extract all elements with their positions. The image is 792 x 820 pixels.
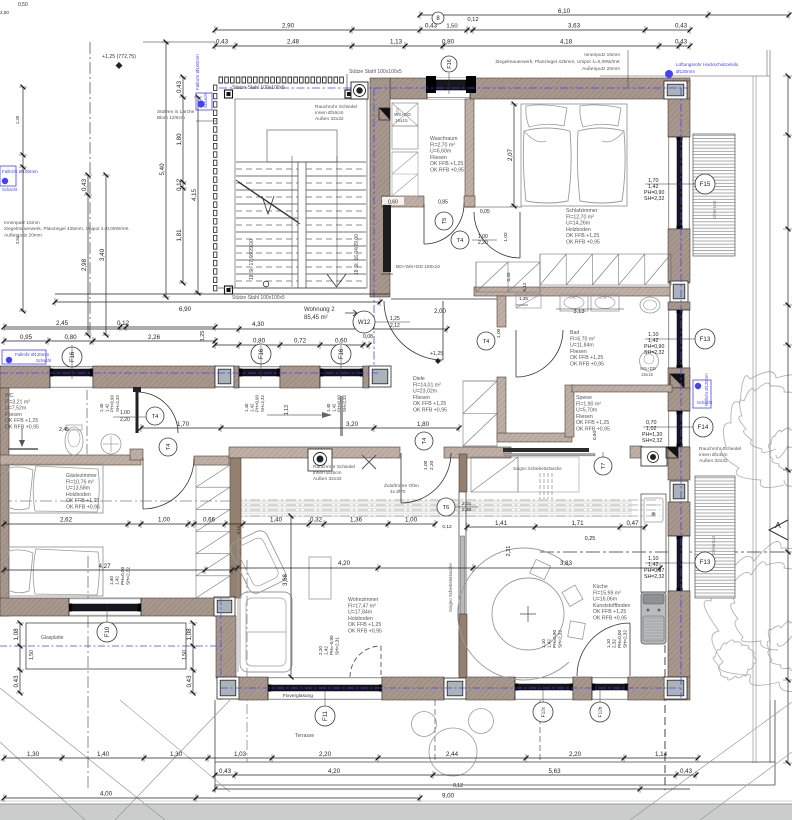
svg-text:0,43: 0,43 bbox=[680, 768, 693, 775]
svg-text:WS+DD: WS+DD bbox=[640, 366, 656, 371]
svg-text:BD+WS+DD 180x10: BD+WS+DD 180x10 bbox=[396, 264, 440, 270]
svg-text:3,68: 3,68 bbox=[283, 574, 289, 586]
svg-text:1,50: 1,50 bbox=[182, 650, 188, 660]
svg-text:18 St. 17,66/29,00: 18 St. 17,66/29,00 bbox=[249, 239, 255, 280]
svg-text:1,81: 1,81 bbox=[176, 229, 183, 242]
svg-text:U=7,52m: U=7,52m bbox=[5, 406, 26, 412]
svg-text:1,80: 1,80 bbox=[176, 133, 183, 146]
svg-text:1,50: 1,50 bbox=[446, 24, 457, 30]
svg-text:Schlafzimmer: Schlafzimmer bbox=[566, 208, 598, 214]
svg-text:1,41: 1,41 bbox=[495, 520, 508, 527]
svg-text:Innenputz 15mm: Innenputz 15mm bbox=[584, 52, 620, 58]
svg-text:U=17,84m: U=17,84m bbox=[348, 610, 372, 616]
svg-text:OK FFB +1,25: OK FFB +1,25 bbox=[5, 418, 38, 424]
svg-text:SH=2,31: SH=2,31 bbox=[335, 637, 340, 655]
svg-text:Holzboden: Holzboden bbox=[348, 616, 373, 622]
svg-text:Fl=10,76 m²: Fl=10,76 m² bbox=[66, 479, 94, 485]
svg-text:1,40: 1,40 bbox=[270, 517, 283, 524]
svg-text:F16: F16 bbox=[447, 59, 453, 68]
svg-text:9,00: 9,00 bbox=[442, 793, 455, 800]
svg-text:PH=0,00: PH=0,00 bbox=[617, 630, 622, 648]
svg-text:15x15: 15x15 bbox=[395, 118, 408, 123]
svg-text:Ziegelmauerwerk, Planziegel 42: Ziegelmauerwerk, Planziegel 425mm, Unipo… bbox=[495, 59, 620, 65]
svg-text:Außen 32x32: Außen 32x32 bbox=[315, 116, 344, 122]
svg-text:W12: W12 bbox=[358, 320, 371, 326]
svg-text:Fl=6,70 m²: Fl=6,70 m² bbox=[570, 336, 595, 342]
svg-text:2,21: 2,21 bbox=[506, 546, 512, 557]
svg-text:4,00: 4,00 bbox=[100, 791, 113, 798]
svg-text:OK RFB +0,95: OK RFB +0,95 bbox=[430, 168, 464, 174]
svg-text:0,72: 0,72 bbox=[294, 338, 307, 345]
svg-text:2,20: 2,20 bbox=[429, 460, 435, 470]
svg-text:OK RFB +0,95: OK RFB +0,95 bbox=[570, 362, 604, 368]
svg-text:OK FFB +1,25: OK FFB +1,25 bbox=[576, 420, 609, 426]
svg-text:2,12: 2,12 bbox=[390, 323, 400, 329]
svg-text:Schacht: Schacht bbox=[697, 400, 713, 405]
svg-text:OK RFB +0,95: OK RFB +0,95 bbox=[566, 240, 600, 246]
svg-text:0,43: 0,43 bbox=[186, 675, 193, 688]
svg-text:4,30: 4,30 bbox=[252, 321, 265, 328]
svg-text:Stützen in Lärche: Stützen in Lärche bbox=[157, 109, 195, 115]
svg-text:SH=2,32: SH=2,32 bbox=[644, 196, 664, 202]
svg-text:1,42: 1,42 bbox=[324, 646, 329, 655]
svg-text:1,70: 1,70 bbox=[177, 421, 190, 428]
svg-text:2,26: 2,26 bbox=[148, 334, 161, 341]
svg-text:6,10: 6,10 bbox=[558, 8, 571, 15]
svg-text:3,83: 3,83 bbox=[560, 560, 573, 567]
svg-text:Blom 12/6cm: Blom 12/6cm bbox=[157, 115, 185, 121]
svg-text:1,80: 1,80 bbox=[417, 421, 430, 428]
svg-text:2,62: 2,62 bbox=[60, 517, 73, 524]
svg-text:T5: T5 bbox=[442, 218, 448, 225]
svg-text:0,60: 0,60 bbox=[388, 200, 398, 206]
svg-text:Stütze Stahl 100x100x5: Stütze Stahl 100x100x5 bbox=[349, 69, 402, 75]
svg-text:1,40: 1,40 bbox=[326, 403, 331, 412]
svg-text:SH=2,32: SH=2,32 bbox=[260, 395, 265, 412]
svg-text:T4: T4 bbox=[422, 437, 428, 445]
svg-text:F16: F16 bbox=[339, 348, 345, 359]
svg-text:SH=2,32: SH=2,32 bbox=[126, 567, 131, 585]
svg-text:Wohnzimmer: Wohnzimmer bbox=[348, 597, 379, 603]
svg-text:1,08: 1,08 bbox=[186, 628, 193, 641]
svg-text:5,40: 5,40 bbox=[159, 163, 166, 176]
svg-text:0,25: 0,25 bbox=[585, 536, 596, 542]
svg-text:0,12: 0,12 bbox=[236, 525, 241, 534]
svg-text:2,20: 2,20 bbox=[569, 751, 582, 758]
svg-text:1,40: 1,40 bbox=[244, 403, 249, 412]
svg-text:1,08: 1,08 bbox=[13, 628, 20, 641]
svg-text:innen Ø16cm: innen Ø16cm bbox=[313, 470, 342, 476]
svg-text:Speise: Speise bbox=[576, 395, 592, 401]
svg-text:Fallrohr Ø120mm: Fallrohr Ø120mm bbox=[15, 352, 50, 357]
svg-text:Fl=2,70 m²: Fl=2,70 m² bbox=[430, 142, 455, 148]
svg-text:Stütze Stahl 100x100x5: Stütze Stahl 100x100x5 bbox=[232, 85, 285, 91]
svg-text:F13: F13 bbox=[700, 336, 711, 343]
svg-text:SH=2,32: SH=2,32 bbox=[644, 350, 664, 356]
svg-text:3,40: 3,40 bbox=[99, 248, 106, 261]
svg-text:T4: T4 bbox=[457, 238, 465, 244]
svg-text:0,47: 0,47 bbox=[626, 520, 639, 527]
svg-text:Rauchrohr Schiedel: Rauchrohr Schiedel bbox=[699, 446, 741, 452]
svg-text:T4: T4 bbox=[166, 443, 172, 451]
svg-text:0,12: 0,12 bbox=[467, 17, 478, 23]
svg-text:1,40: 1,40 bbox=[109, 576, 114, 585]
svg-text:Fl=17,47 m²: Fl=17,47 m² bbox=[348, 603, 376, 609]
svg-text:Außen 32x32: Außen 32x32 bbox=[313, 476, 342, 482]
svg-text:1,71: 1,71 bbox=[571, 520, 584, 527]
svg-text:1,42: 1,42 bbox=[115, 576, 120, 585]
svg-text:3,20: 3,20 bbox=[346, 421, 359, 428]
svg-text:1,14: 1,14 bbox=[655, 751, 668, 758]
svg-text:0,43: 0,43 bbox=[219, 768, 232, 775]
svg-text:WC: WC bbox=[5, 393, 14, 399]
svg-text:PH=0,90: PH=0,90 bbox=[120, 567, 125, 585]
svg-text:1,13: 1,13 bbox=[390, 39, 403, 46]
svg-text:U=5,70m: U=5,70m bbox=[576, 408, 597, 414]
svg-text:F12c: F12c bbox=[541, 706, 547, 717]
svg-text:OK FFB +1,25: OK FFB +1,25 bbox=[570, 355, 603, 361]
svg-text:4,20: 4,20 bbox=[328, 768, 341, 775]
svg-text:U=11,84m: U=11,84m bbox=[570, 343, 594, 349]
svg-text:4,15: 4,15 bbox=[191, 188, 198, 201]
svg-text:OK FFB +1,25: OK FFB +1,25 bbox=[593, 609, 626, 615]
svg-text:Schacht: Schacht bbox=[2, 187, 18, 192]
svg-text:0,05: 0,05 bbox=[480, 209, 490, 215]
svg-text:Fallrohr Ø100mm: Fallrohr Ø100mm bbox=[195, 54, 200, 90]
svg-text:Fixverglasung: Fixverglasung bbox=[283, 693, 313, 699]
svg-text:15x15: 15x15 bbox=[641, 372, 654, 377]
svg-text:Außenputz 20mm: Außenputz 20mm bbox=[4, 232, 42, 238]
svg-text:0,08: 0,08 bbox=[363, 334, 373, 340]
svg-text:SH=2,32: SH=2,32 bbox=[342, 395, 347, 412]
svg-text:PH=0,90: PH=0,90 bbox=[255, 395, 260, 412]
svg-text:OK FFB +1,25: OK FFB +1,25 bbox=[66, 498, 99, 504]
svg-text:F12b: F12b bbox=[598, 706, 604, 717]
svg-text:2,44: 2,44 bbox=[446, 751, 459, 758]
svg-text:Bad: Bad bbox=[570, 330, 579, 336]
svg-text:Holzboden: Holzboden bbox=[66, 492, 91, 498]
svg-text:OK RFB +0,95: OK RFB +0,95 bbox=[348, 629, 382, 635]
svg-text:F14: F14 bbox=[698, 424, 709, 431]
svg-text:0,12: 0,12 bbox=[176, 178, 183, 191]
svg-text:0,43: 0,43 bbox=[81, 178, 88, 191]
svg-text:Schacht: Schacht bbox=[36, 358, 52, 363]
svg-text:U=13,58m: U=13,58m bbox=[66, 486, 90, 492]
svg-text:0,43: 0,43 bbox=[675, 23, 688, 30]
svg-text:OK FFB +1,25: OK FFB +1,25 bbox=[430, 161, 463, 167]
svg-text:6,90: 6,90 bbox=[179, 306, 192, 313]
svg-text:OK RFB +0,95: OK RFB +0,95 bbox=[593, 616, 627, 622]
svg-text:OK RFB +0,95: OK RFB +0,95 bbox=[66, 505, 100, 511]
svg-text:+1,25 (772,75): +1,25 (772,75) bbox=[102, 54, 136, 60]
svg-text:U=6,60m: U=6,60m bbox=[430, 149, 451, 155]
svg-text:2,45: 2,45 bbox=[56, 320, 69, 327]
svg-text:T7: T7 bbox=[601, 463, 607, 470]
svg-text:PH=0,90: PH=0,90 bbox=[337, 395, 342, 412]
svg-text:0,50: 0,50 bbox=[18, 2, 28, 8]
svg-text:1,00: 1,00 bbox=[120, 410, 130, 416]
svg-text:85,45 m²: 85,45 m² bbox=[304, 315, 328, 321]
svg-text:+1,25: +1,25 bbox=[430, 351, 443, 357]
svg-text:Fl=12,70 m²: Fl=12,70 m² bbox=[566, 214, 594, 220]
svg-text:1,10: 1,10 bbox=[541, 639, 546, 648]
svg-text:SH=2,32: SH=2,32 bbox=[642, 438, 662, 444]
svg-text:1,25: 1,25 bbox=[200, 331, 206, 342]
svg-text:Holzboden: Holzboden bbox=[566, 227, 591, 233]
svg-text:0,80: 0,80 bbox=[64, 334, 77, 341]
svg-text:SH=2,32: SH=2,32 bbox=[623, 630, 628, 648]
svg-text:F16: F16 bbox=[70, 351, 76, 362]
svg-text:2,45: 2,45 bbox=[59, 427, 69, 433]
svg-text:4,27: 4,27 bbox=[98, 563, 111, 570]
svg-text:1,50: 1,50 bbox=[29, 650, 35, 660]
svg-text:Zuluftrohre Ofen: Zuluftrohre Ofen bbox=[384, 483, 419, 489]
svg-text:0,80: 0,80 bbox=[442, 39, 455, 46]
svg-text:4,20: 4,20 bbox=[338, 560, 351, 567]
svg-text:F16: F16 bbox=[259, 348, 265, 359]
svg-text:U=23,02m: U=23,02m bbox=[413, 389, 437, 395]
svg-text:Rauchrohr Schiedel: Rauchrohr Schiedel bbox=[313, 464, 355, 470]
svg-text:1,38: 1,38 bbox=[15, 115, 20, 124]
svg-text:0,12: 0,12 bbox=[522, 282, 527, 291]
svg-text:0,95: 0,95 bbox=[20, 334, 33, 341]
svg-text:Fl=3,21 m²: Fl=3,21 m² bbox=[5, 399, 30, 405]
svg-text:OK FFB +1,25: OK FFB +1,25 bbox=[566, 233, 599, 239]
svg-text:Fallrohr Ø100mm: Fallrohr Ø100mm bbox=[2, 169, 38, 174]
svg-text:1,00: 1,00 bbox=[423, 460, 429, 470]
svg-text:SH=2,32: SH=2,32 bbox=[644, 574, 664, 580]
svg-text:2,00: 2,00 bbox=[434, 309, 446, 315]
svg-text:OK FFB +1,25: OK FFB +1,25 bbox=[413, 401, 446, 407]
svg-text:1,30: 1,30 bbox=[27, 751, 40, 758]
svg-text:0,80: 0,80 bbox=[253, 338, 266, 345]
svg-text:1,10: 1,10 bbox=[606, 639, 611, 648]
svg-text:U=16,06m: U=16,06m bbox=[593, 597, 617, 603]
svg-text:OK RFB +0,95: OK RFB +0,95 bbox=[5, 425, 39, 431]
svg-text:Rauchrohr Schiedel: Rauchrohr Schiedel bbox=[315, 104, 357, 110]
svg-text:2,20: 2,20 bbox=[319, 751, 332, 758]
svg-text:innen Ø16cm: innen Ø16cm bbox=[315, 110, 344, 116]
svg-text:0,66: 0,66 bbox=[203, 517, 216, 524]
svg-text:PH=-0,90: PH=-0,90 bbox=[329, 635, 334, 655]
svg-text:F10: F10 bbox=[105, 626, 111, 637]
svg-text:1,00: 1,00 bbox=[405, 517, 418, 524]
svg-text:U=14,26m: U=14,26m bbox=[566, 221, 590, 227]
svg-text:Gästezimmer: Gästezimmer bbox=[66, 473, 97, 479]
svg-text:2,48: 2,48 bbox=[287, 39, 300, 46]
svg-text:Lüftungsrohr Hackschnitzelsilo: Lüftungsrohr Hackschnitzelsilo bbox=[676, 62, 739, 67]
svg-text:3,13: 3,13 bbox=[573, 309, 584, 315]
svg-text:WS+DD: WS+DD bbox=[394, 112, 411, 117]
svg-text:F11: F11 bbox=[323, 710, 329, 721]
svg-text:0,32: 0,32 bbox=[310, 517, 323, 524]
svg-text:0,60: 0,60 bbox=[335, 338, 348, 345]
svg-text:1,42: 1,42 bbox=[547, 639, 552, 648]
svg-text:Fl=1,90 m²: Fl=1,90 m² bbox=[576, 401, 601, 407]
svg-text:Waschraum: Waschraum bbox=[430, 136, 457, 142]
svg-text:2,98: 2,98 bbox=[81, 258, 88, 271]
svg-text:0,12: 0,12 bbox=[442, 524, 452, 530]
svg-text:0,85: 0,85 bbox=[438, 200, 448, 206]
svg-text:1,40: 1,40 bbox=[97, 751, 110, 758]
svg-text:PH=0,90: PH=0,90 bbox=[552, 630, 557, 648]
svg-text:Fliesen: Fliesen bbox=[413, 395, 430, 401]
svg-text:1,42: 1,42 bbox=[104, 403, 109, 412]
svg-text:Terrasse: Terrasse bbox=[295, 733, 314, 739]
svg-text:Küche: Küche bbox=[593, 584, 608, 590]
svg-text:OK RFB +0,95: OK RFB +0,95 bbox=[413, 408, 447, 414]
svg-text:2,20: 2,20 bbox=[478, 240, 488, 246]
svg-text:Glasplatte: Glasplatte bbox=[41, 635, 64, 641]
svg-text:0,43: 0,43 bbox=[176, 80, 183, 93]
svg-text:Kunststoffboden: Kunststoffboden bbox=[593, 603, 631, 609]
svg-text:Schacht: Schacht bbox=[203, 92, 208, 108]
svg-text:1,13: 1,13 bbox=[284, 405, 290, 415]
svg-text:Ziegelmauerwerk, Planziegel 42: Ziegelmauerwerk, Planziegel 425mm, Unipo… bbox=[4, 226, 129, 232]
svg-text:innen Ø14cm: innen Ø14cm bbox=[699, 452, 728, 458]
svg-text:0,43: 0,43 bbox=[216, 39, 229, 46]
svg-text:1,42: 1,42 bbox=[331, 403, 336, 412]
svg-text:18 St. 16,04/29,00: 18 St. 16,04/29,00 bbox=[354, 234, 360, 275]
svg-text:2,20: 2,20 bbox=[120, 417, 130, 423]
svg-text:2,20: 2,20 bbox=[318, 646, 323, 655]
svg-text:SH=2,32: SH=2,32 bbox=[558, 630, 563, 648]
svg-text:0,94: 0,94 bbox=[592, 431, 597, 440]
svg-text:1,25: 1,25 bbox=[519, 296, 528, 301]
svg-text:Wohnung 2: Wohnung 2 bbox=[304, 307, 335, 313]
svg-text:4,18: 4,18 bbox=[560, 39, 573, 46]
svg-text:0,43: 0,43 bbox=[13, 675, 20, 688]
svg-text:1,42: 1,42 bbox=[249, 403, 254, 412]
svg-text:Stütze Stahl 100x100x5: Stütze Stahl 100x100x5 bbox=[232, 295, 285, 301]
svg-text:2,01: 2,01 bbox=[462, 501, 472, 507]
svg-text:2,30: 2,30 bbox=[462, 507, 472, 513]
svg-text:Soigno Schiebetürtasche: Soigno Schiebetürtasche bbox=[448, 563, 453, 612]
svg-text:2,90: 2,90 bbox=[282, 23, 295, 30]
svg-text:T4: T4 bbox=[483, 339, 491, 345]
svg-text:3,63: 3,63 bbox=[568, 23, 581, 30]
svg-text:A: A bbox=[775, 520, 781, 530]
svg-text:1,03: 1,03 bbox=[234, 751, 247, 758]
svg-text:Fl=14,01 m²: Fl=14,01 m² bbox=[413, 382, 441, 388]
svg-text:1,25: 1,25 bbox=[390, 316, 400, 322]
svg-text:Fliesen: Fliesen bbox=[576, 414, 593, 420]
svg-text:1,30: 1,30 bbox=[170, 751, 183, 758]
svg-text:Fliesen: Fliesen bbox=[570, 349, 587, 355]
svg-text:T6: T6 bbox=[443, 505, 450, 511]
svg-text:Gitterrost: Gitterrost bbox=[711, 535, 716, 554]
svg-text:F13: F13 bbox=[700, 559, 711, 566]
svg-text:Innenputz 15mm: Innenputz 15mm bbox=[4, 220, 40, 226]
svg-text:Diele: Diele bbox=[413, 376, 425, 382]
svg-text:1,40: 1,40 bbox=[99, 403, 104, 412]
svg-text:Soigno Schiebetürtasche: Soigno Schiebetürtasche bbox=[513, 466, 562, 471]
svg-text:2,07: 2,07 bbox=[507, 148, 514, 161]
svg-text:2,32: 2,32 bbox=[612, 639, 617, 648]
svg-text:2,50: 2,50 bbox=[0, 10, 9, 15]
svg-text:1,00: 1,00 bbox=[158, 517, 171, 524]
svg-text:Ø120mm: Ø120mm bbox=[676, 69, 695, 74]
svg-text:+++: +++ bbox=[600, 296, 608, 301]
svg-text:1,36: 1,36 bbox=[350, 517, 363, 524]
svg-text:PH=0,90: PH=0,90 bbox=[110, 395, 115, 412]
svg-text:Fliesen: Fliesen bbox=[430, 155, 447, 161]
svg-text:4x Ø70: 4x Ø70 bbox=[390, 489, 406, 495]
svg-text:Gitterrost: Gitterrost bbox=[712, 200, 717, 219]
svg-text:Außenputz 20mm: Außenputz 20mm bbox=[582, 66, 620, 72]
svg-text:1,00: 1,00 bbox=[496, 328, 502, 338]
svg-text:1,02: 1,02 bbox=[503, 232, 509, 242]
svg-text:T4: T4 bbox=[152, 414, 160, 420]
svg-text:0,43: 0,43 bbox=[506, 272, 511, 281]
svg-text:5,63: 5,63 bbox=[548, 768, 561, 775]
svg-text:0,12: 0,12 bbox=[453, 783, 463, 789]
svg-text:F15: F15 bbox=[700, 181, 711, 188]
svg-text:+++: +++ bbox=[569, 296, 577, 301]
svg-text:Fliesen: Fliesen bbox=[5, 412, 22, 418]
svg-text:OK FFB +1,25: OK FFB +1,25 bbox=[348, 622, 381, 628]
svg-text:0,12: 0,12 bbox=[117, 320, 130, 327]
svg-text:Außen 32x32: Außen 32x32 bbox=[699, 458, 728, 464]
svg-text:Fl=15,99 m²: Fl=15,99 m² bbox=[593, 590, 621, 596]
svg-text:0,43: 0,43 bbox=[675, 39, 688, 46]
